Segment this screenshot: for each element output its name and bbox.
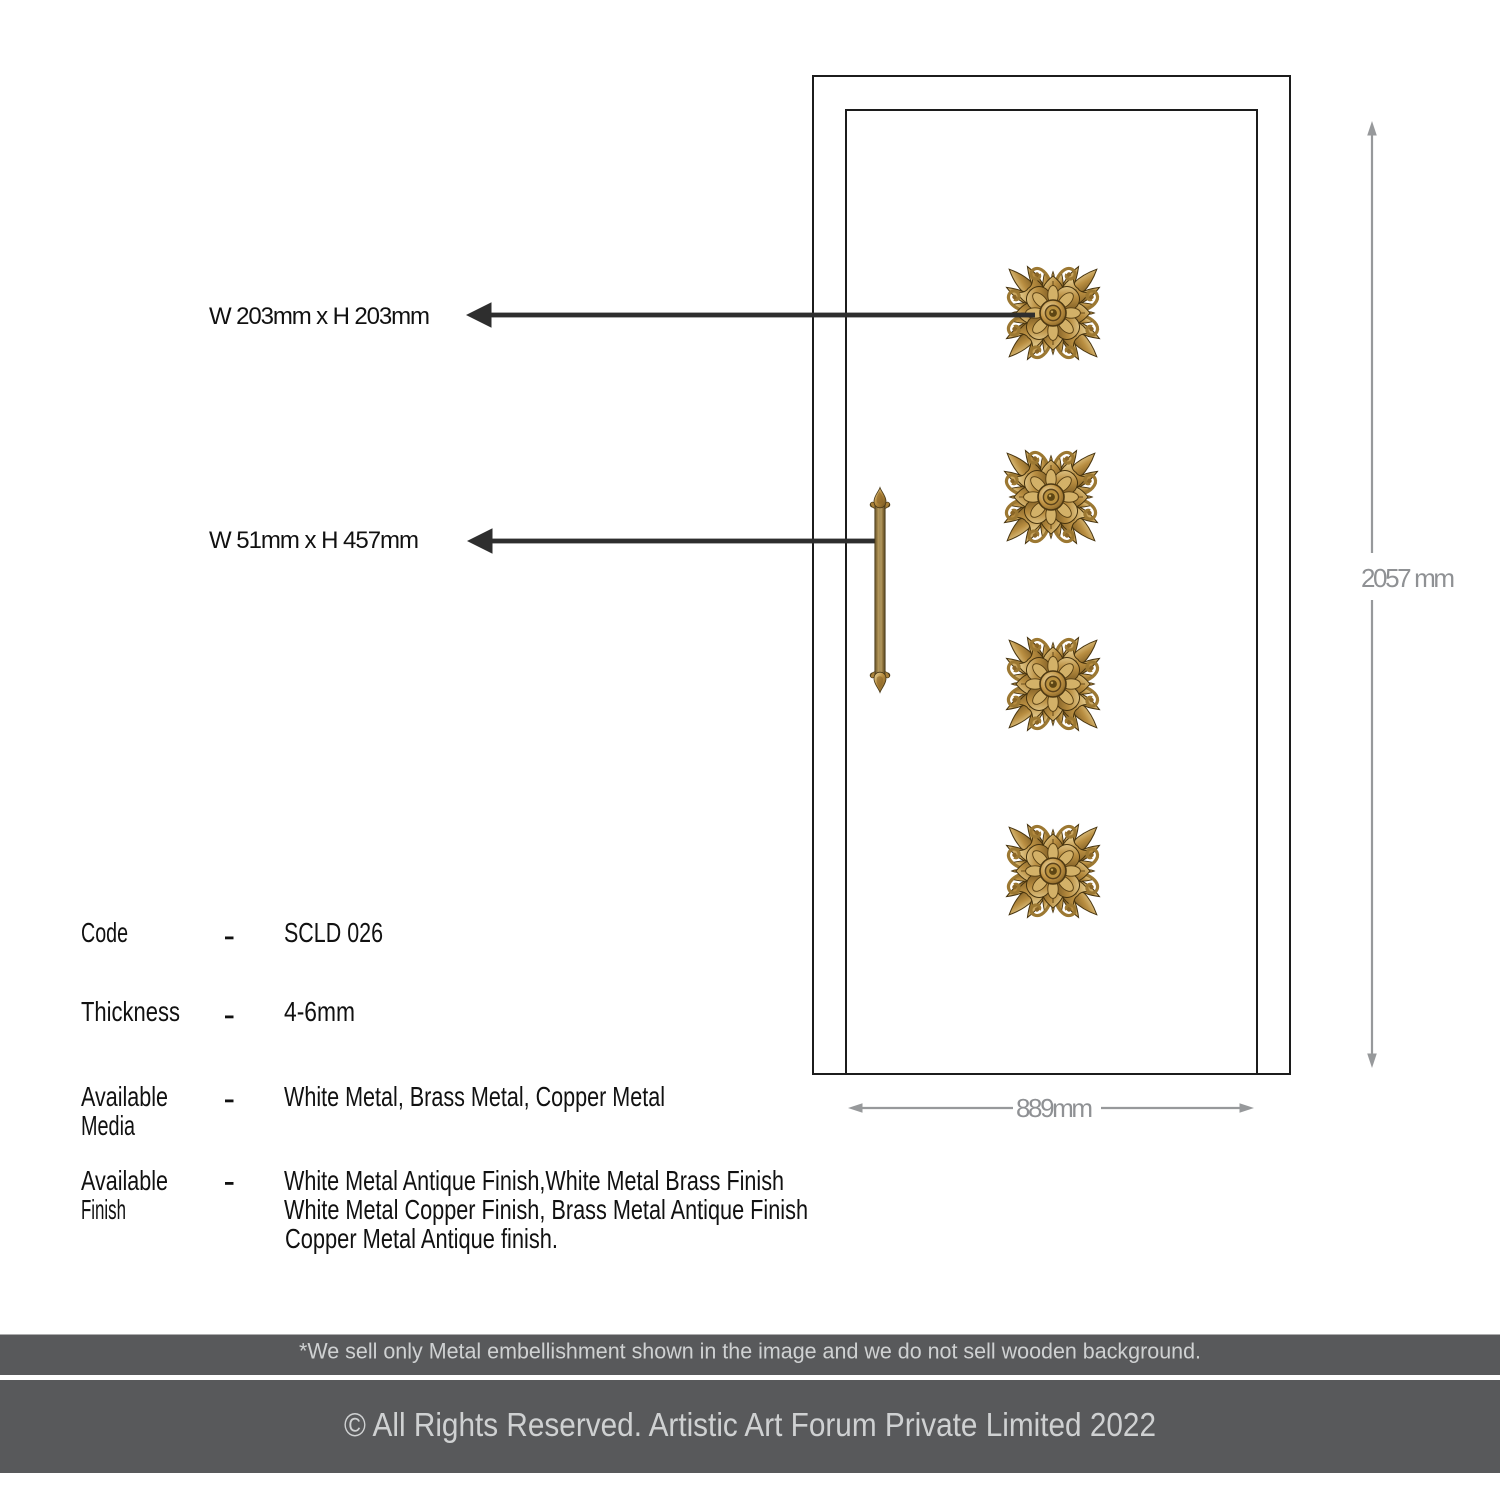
svg-text:889mm: 889mm	[1016, 1093, 1093, 1123]
svg-text:Media: Media	[81, 1110, 135, 1141]
svg-text:© All Rights Reserved. Artisti: © All Rights Reserved. Artistic Art Foru…	[344, 1406, 1156, 1443]
svg-text:2057 mm: 2057 mm	[1361, 563, 1455, 593]
svg-text:Copper Metal Antique finish.: Copper Metal Antique finish.	[285, 1223, 558, 1254]
svg-text:Available: Available	[81, 1165, 168, 1196]
svg-text:Finish: Finish	[81, 1194, 126, 1225]
svg-text:4-6mm: 4-6mm	[284, 996, 355, 1027]
svg-text:White Metal Copper Finish, Bra: White Metal Copper Finish, Brass Metal A…	[284, 1194, 808, 1225]
svg-text:*We sell only Metal embellishm: *We sell only Metal embellishment shown …	[299, 1339, 1201, 1364]
svg-text:SCLD 026: SCLD 026	[284, 917, 383, 948]
svg-text:W 51mm x H 457mm: W 51mm x H 457mm	[209, 527, 419, 554]
svg-text:Code: Code	[81, 917, 128, 948]
svg-text:Thickness: Thickness	[81, 996, 180, 1027]
svg-text:White Metal, Brass Metal, Copp: White Metal, Brass Metal, Copper Metal	[284, 1081, 665, 1112]
svg-text:W 203mm x H 203mm: W 203mm x H 203mm	[209, 303, 430, 330]
svg-text:White Metal Antique Finish,Whi: White Metal Antique Finish,White Metal B…	[284, 1165, 784, 1196]
svg-text:Available: Available	[81, 1081, 168, 1112]
